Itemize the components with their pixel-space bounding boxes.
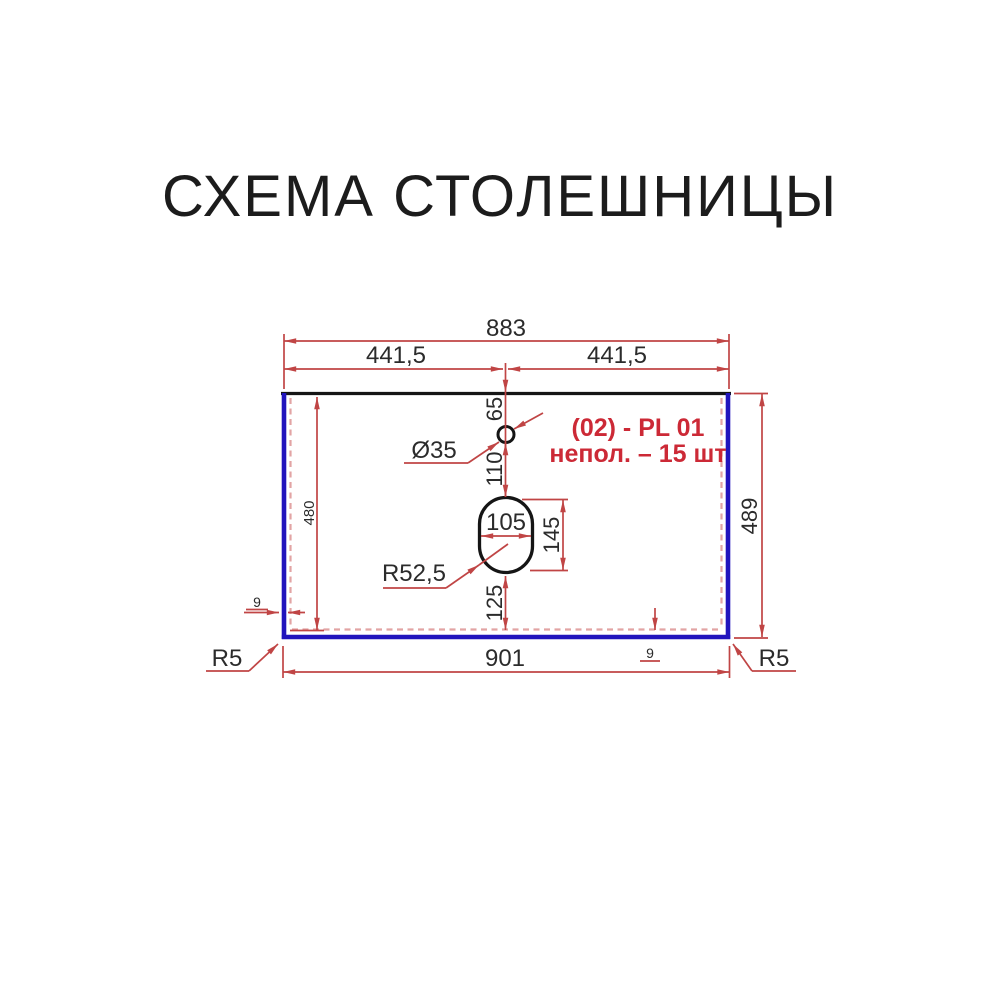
dim-hole-offset-top: 65 — [482, 397, 507, 421]
part-annotation-line1: (02) - PL 01 — [572, 414, 705, 442]
dim-bottom-total: 901 — [485, 645, 525, 672]
countertop-drawing: 883 441,5 441,5 65 Ø35 110 105 — [0, 0, 1000, 1000]
dim-top-left-half: 441,5 — [366, 342, 426, 369]
dim-side-height: 489 — [737, 498, 762, 535]
dim-hole-diameter: Ø35 — [411, 437, 456, 464]
dim-inner-height: 480 — [301, 500, 318, 525]
sink-dimensions: 105 145 R52,5 125 — [382, 500, 568, 631]
diagram-page: СХЕМА СТОЛЕШНИЦЫ — [0, 0, 1000, 1000]
edge-thickness-dimensions: 9 9 — [244, 594, 660, 661]
faucet-dimensions: 65 Ø35 110 — [404, 397, 543, 497]
dim-cutout-radius: R52,5 — [382, 560, 446, 587]
dim-corner-radius-right: R5 — [759, 645, 790, 672]
dim-cutout-width: 105 — [486, 509, 526, 536]
part-annotation: (02) - PL 01 непол. – 15 шт — [549, 414, 726, 468]
dim-top-total: 883 — [486, 315, 526, 342]
part-annotation-line2: непол. – 15 шт — [549, 440, 726, 468]
dim-top-right-half: 441,5 — [587, 342, 647, 369]
dim-corner-radius-left: R5 — [212, 645, 243, 672]
bottom-dimensions: 901 — [283, 645, 730, 678]
dim-hole-to-cutout: 110 — [482, 451, 507, 486]
dim-cutout-height: 145 — [539, 517, 564, 554]
dim-edge-thickness-left: 9 — [253, 594, 261, 610]
dim-edge-thickness-bottom: 9 — [646, 645, 654, 661]
dim-cutout-offset-bottom: 125 — [482, 585, 507, 622]
